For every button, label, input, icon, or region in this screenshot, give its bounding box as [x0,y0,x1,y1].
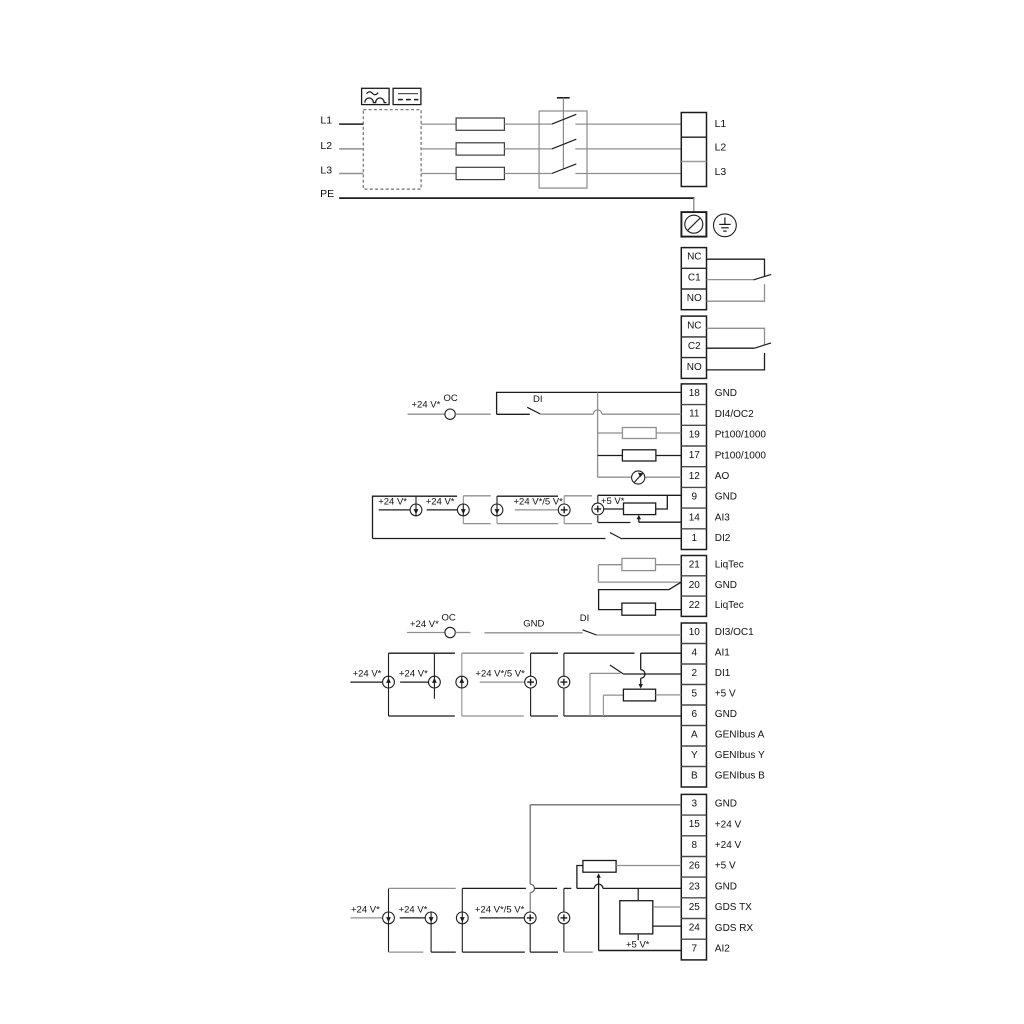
svg-text:+5 V: +5 V [715,861,736,872]
svg-text:PE: PE [320,188,334,200]
svg-text:AI2: AI2 [715,944,730,955]
svg-text:+24 V*: +24 V* [351,905,380,916]
svg-text:1: 1 [692,533,698,544]
svg-text:Y: Y [691,750,698,761]
svg-text:NC: NC [687,252,701,263]
svg-text:NO: NO [687,293,702,304]
svg-text:NC: NC [687,320,701,331]
svg-text:DI: DI [580,613,590,624]
svg-text:+24 V*: +24 V* [410,619,439,630]
svg-text:+5 V*: +5 V* [626,939,650,950]
svg-text:C1: C1 [688,272,701,283]
svg-text:DI2: DI2 [715,533,731,544]
svg-text:DI3/OC1: DI3/OC1 [715,627,754,638]
svg-text:GND: GND [523,619,544,630]
svg-text:26: 26 [689,861,701,872]
svg-text:22: 22 [689,600,701,611]
svg-text:GENIbus B: GENIbus B [715,771,765,782]
svg-text:AO: AO [715,471,730,482]
svg-text:LiqTec: LiqTec [715,600,744,611]
svg-text:GND: GND [715,799,737,810]
svg-text:10: 10 [689,627,701,638]
svg-text:21: 21 [689,559,701,570]
svg-text:19: 19 [689,429,701,440]
svg-text:+24 V*: +24 V* [378,497,407,508]
svg-text:11: 11 [689,409,700,420]
svg-text:+24 V*: +24 V* [412,400,441,411]
svg-text:GDS RX: GDS RX [715,923,754,934]
svg-text:6: 6 [692,709,698,720]
svg-text:B: B [691,771,698,782]
svg-text:GND: GND [715,492,737,503]
svg-text:GND: GND [715,881,737,892]
svg-text:GDS TX: GDS TX [715,902,752,913]
svg-text:C2: C2 [688,341,701,352]
svg-text:+24 V*/5 V*: +24 V*/5 V* [475,905,525,916]
svg-text:L1: L1 [320,115,332,127]
svg-text:DI1: DI1 [715,668,731,679]
svg-text:L2: L2 [320,140,332,152]
svg-text:4: 4 [692,648,698,659]
svg-text:+24 V: +24 V [715,840,742,851]
svg-text:GND: GND [715,709,737,720]
svg-text:GND: GND [715,580,737,591]
svg-text:Pt100/1000: Pt100/1000 [715,430,767,441]
svg-text:9: 9 [692,492,698,503]
svg-text:L3: L3 [715,166,727,178]
svg-text:+24 V*: +24 V* [399,905,428,916]
svg-text:+24 V*/5 V*: +24 V*/5 V* [514,497,564,508]
svg-text:+5 V*: +5 V* [601,496,625,507]
svg-text:8: 8 [692,840,698,851]
svg-text:7: 7 [692,943,698,954]
svg-text:3: 3 [692,799,698,810]
svg-text:Pt100/1000: Pt100/1000 [715,450,767,461]
svg-text:18: 18 [689,388,701,399]
svg-text:5: 5 [692,689,698,700]
svg-text:OC: OC [442,612,456,623]
svg-text:GND: GND [715,388,737,399]
svg-text:12: 12 [689,471,701,482]
svg-text:OC: OC [444,393,458,404]
svg-text:2: 2 [692,668,698,679]
svg-text:LiqTec: LiqTec [715,560,744,571]
svg-text:+5 V: +5 V [715,689,736,700]
svg-text:14: 14 [689,512,701,523]
svg-text:+24 V*/5 V*: +24 V*/5 V* [475,668,525,679]
svg-text:GENIbus A: GENIbus A [715,730,765,741]
svg-text:L3: L3 [320,164,332,176]
svg-text:25: 25 [689,902,701,913]
svg-text:+24 V*: +24 V* [353,668,382,679]
svg-text:A: A [691,730,698,741]
svg-text:L1: L1 [715,118,727,130]
svg-text:23: 23 [689,881,701,892]
svg-text:DI4/OC2: DI4/OC2 [715,409,754,420]
svg-text:L2: L2 [715,142,727,154]
svg-text:17: 17 [689,450,701,461]
svg-text:GENIbus Y: GENIbus Y [715,750,765,761]
svg-text:DI: DI [533,394,543,405]
svg-text:AI1: AI1 [715,648,730,659]
svg-text:NO: NO [687,362,702,373]
svg-text:20: 20 [689,580,701,591]
svg-text:AI3: AI3 [715,512,730,523]
svg-text:+24 V*: +24 V* [426,497,455,508]
svg-text:+24 V*: +24 V* [399,668,428,679]
svg-text:+24 V: +24 V [715,819,742,830]
svg-text:24: 24 [689,923,701,934]
svg-text:15: 15 [689,819,701,830]
